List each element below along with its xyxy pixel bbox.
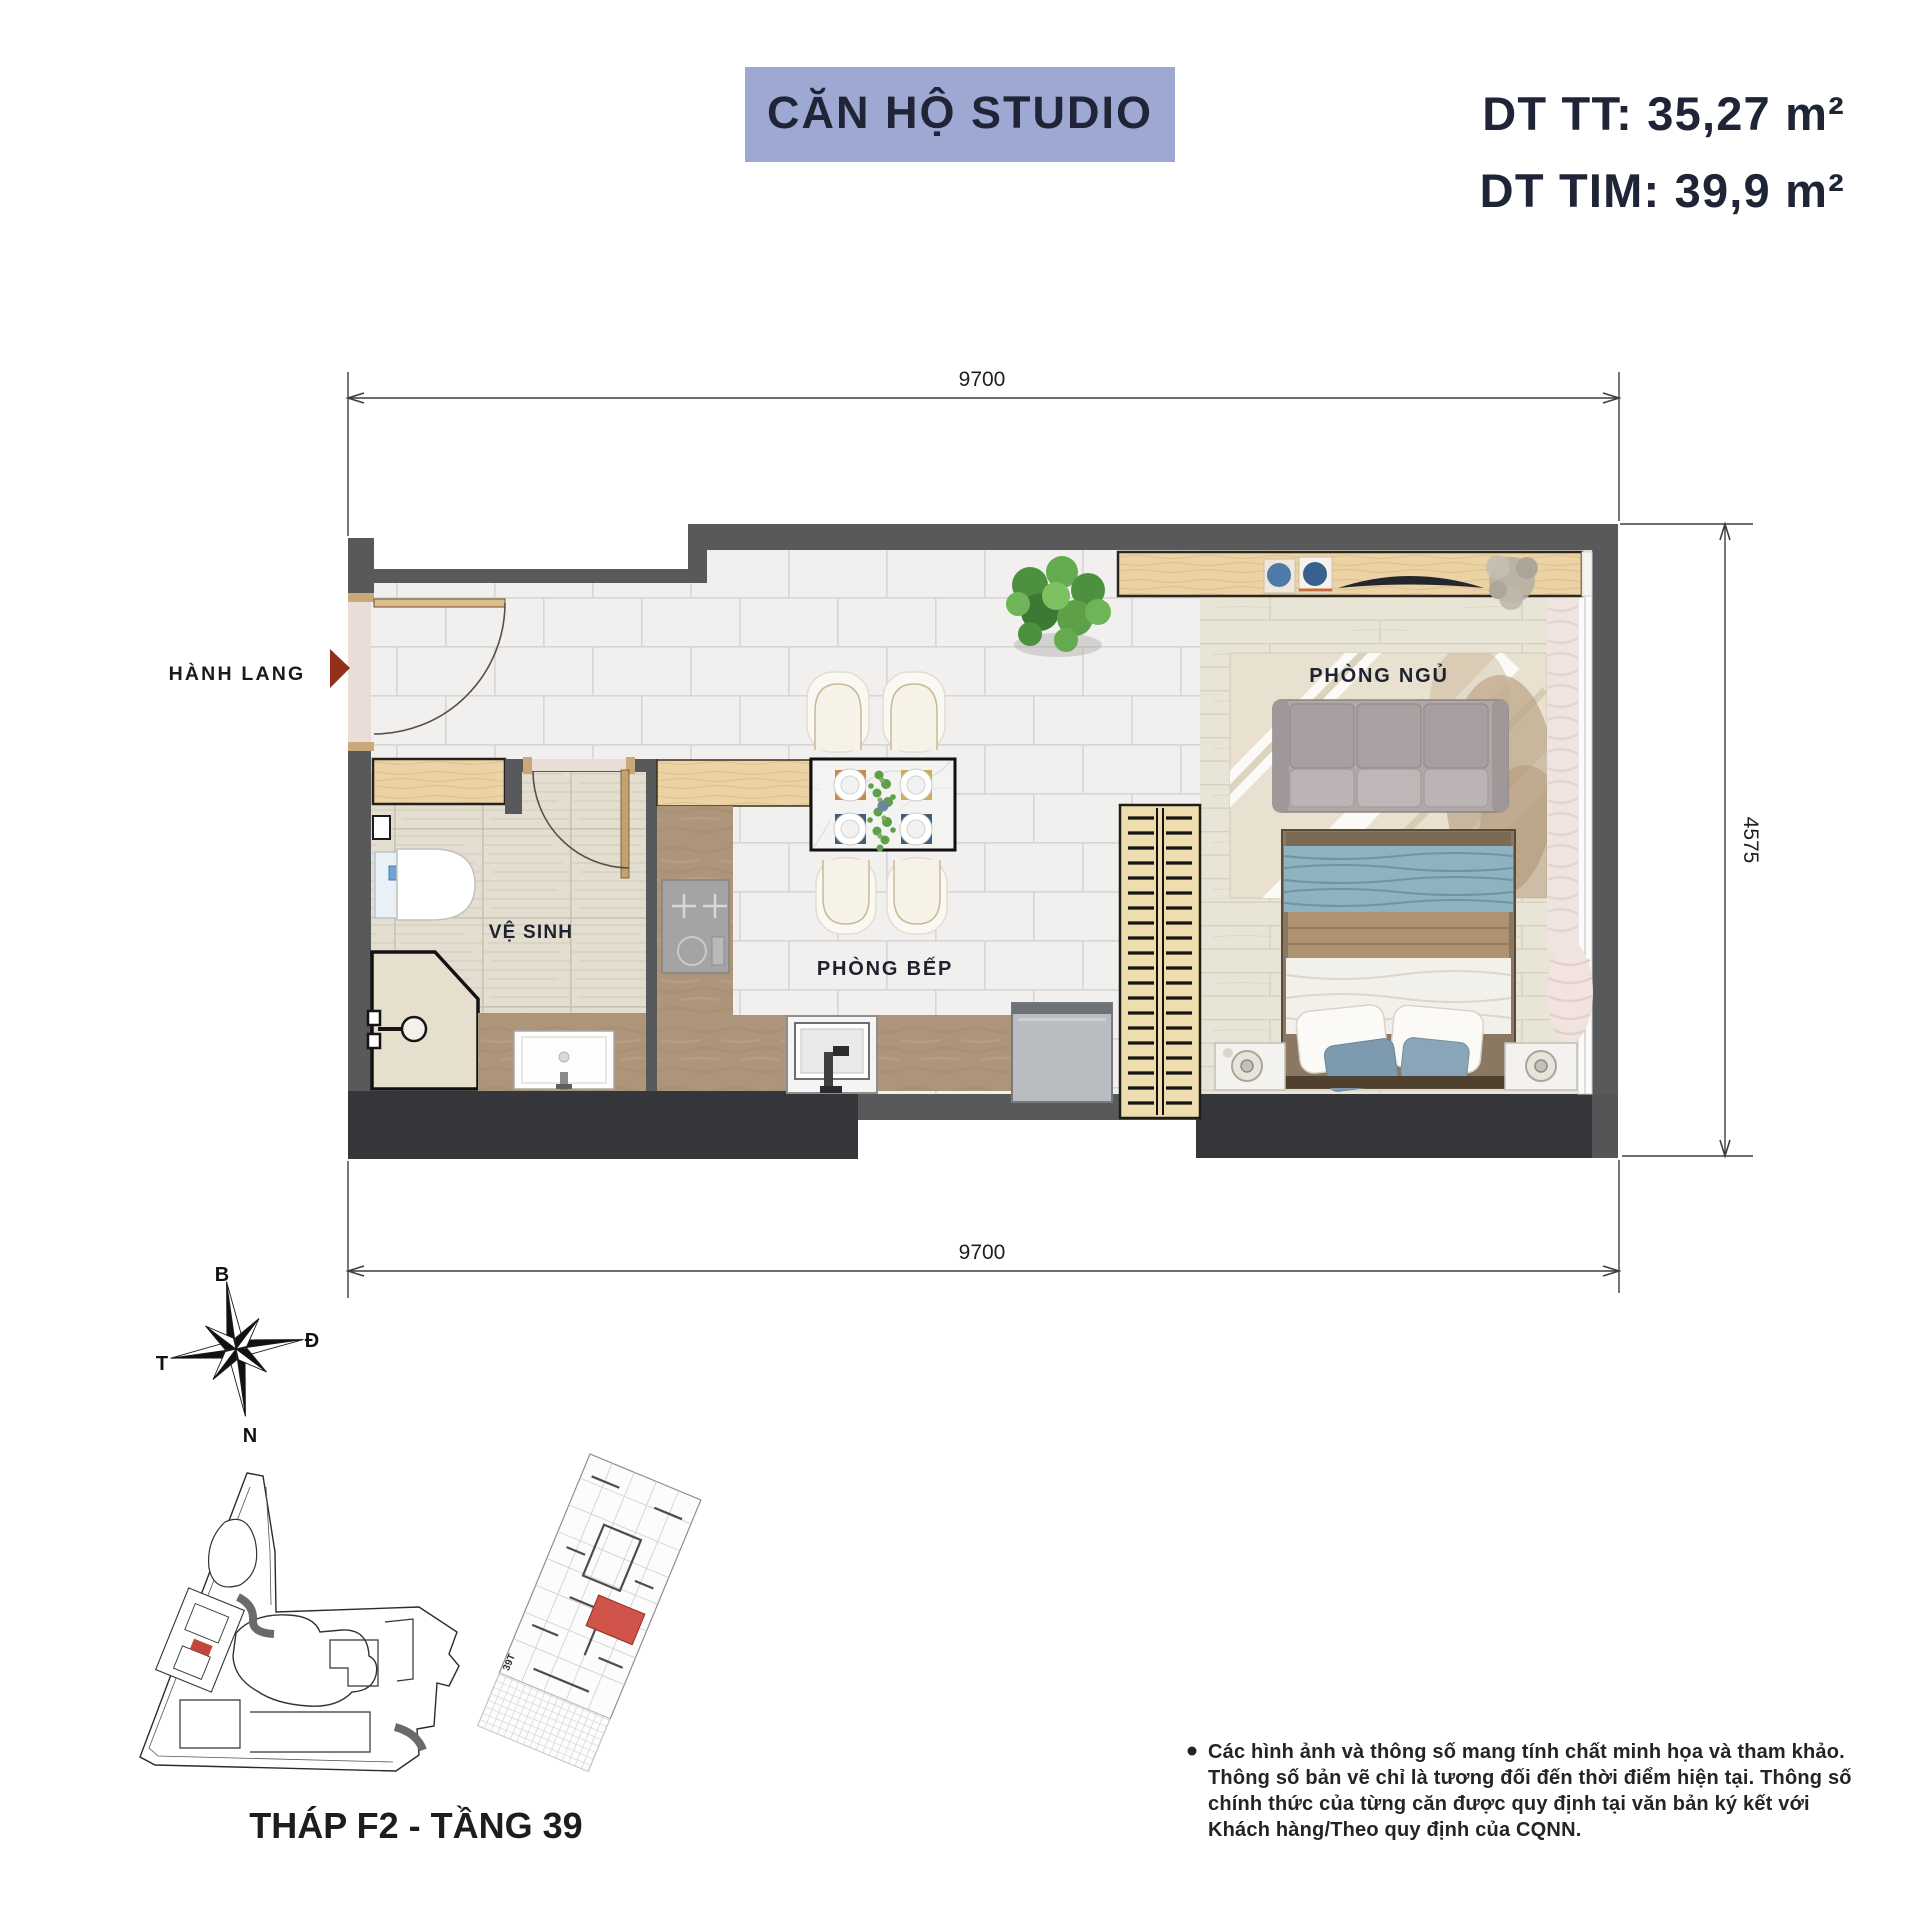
svg-text:chính thức của từng căn được q: chính thức của từng căn được quy định tạ… [1208, 1793, 1810, 1815]
svg-text:PHÒNG NGỦ: PHÒNG NGỦ [1309, 663, 1449, 687]
svg-text:Khách hàng/Theo quy định của C: Khách hàng/Theo quy định của CQNN. [1208, 1819, 1581, 1841]
svg-text:Các hình ảnh và thông số mang: Các hình ảnh và thông số mang tính chất … [1208, 1741, 1845, 1763]
svg-text:9700: 9700 [959, 368, 1006, 391]
svg-text:HÀNH LANG: HÀNH LANG [169, 662, 306, 685]
svg-text:B: B [215, 1264, 229, 1286]
svg-text:THÁP F2 - TẦNG 39: THÁP F2 - TẦNG 39 [249, 1805, 582, 1846]
svg-text:Đ: Đ [305, 1330, 319, 1352]
svg-text:9700: 9700 [959, 1241, 1006, 1264]
svg-text:DT TT: 35,27 m²: DT TT: 35,27 m² [1482, 87, 1845, 140]
svg-text:VỆ SINH: VỆ SINH [489, 921, 573, 943]
svg-text:N: N [243, 1425, 257, 1447]
svg-text:T: T [156, 1353, 168, 1375]
svg-text:DT TIM: 39,9 m²: DT TIM: 39,9 m² [1480, 164, 1845, 217]
svg-text:Thông số bản vẽ chỉ là tương đ: Thông số bản vẽ chỉ là tương đối đến thờ… [1208, 1767, 1852, 1789]
svg-text:4575: 4575 [1739, 817, 1762, 864]
svg-text:PHÒNG BẾP: PHÒNG BẾP [817, 956, 953, 980]
svg-text:CĂN HỘ STUDIO: CĂN HỘ STUDIO [767, 87, 1153, 138]
